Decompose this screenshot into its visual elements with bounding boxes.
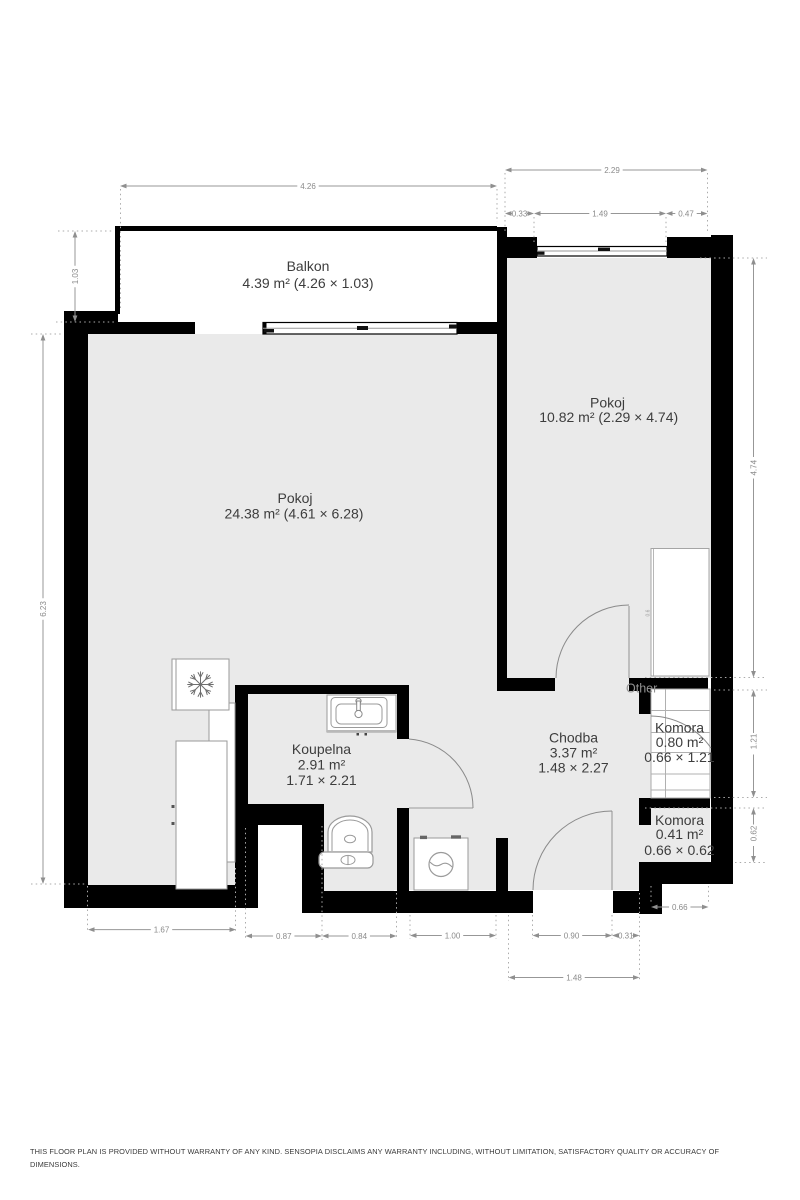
svg-text:0.41 m²: 0.41 m² — [656, 826, 704, 842]
svg-text:1.03: 1.03 — [71, 268, 80, 284]
svg-text:3.37 m²: 3.37 m² — [550, 745, 598, 761]
svg-text:0.90: 0.90 — [564, 931, 580, 940]
svg-text:0.6: 0.6 — [646, 609, 652, 616]
svg-text:0.66: 0.66 — [672, 903, 688, 912]
svg-text:0.87: 0.87 — [276, 932, 292, 941]
svg-text:0.33: 0.33 — [512, 209, 528, 218]
svg-text:0.47: 0.47 — [678, 209, 694, 218]
svg-text:Koupelna: Koupelna — [292, 741, 351, 757]
svg-text:1.48: 1.48 — [566, 973, 582, 982]
svg-text:DIMENSIONS.: DIMENSIONS. — [30, 1160, 80, 1169]
svg-text:0.84: 0.84 — [351, 932, 367, 941]
svg-text:0.80 m²: 0.80 m² — [656, 734, 704, 750]
svg-text:24.38 m² (4.61 × 6.28): 24.38 m² (4.61 × 6.28) — [225, 506, 364, 522]
svg-text:4.39 m² (4.26 × 1.03): 4.39 m² (4.26 × 1.03) — [242, 275, 373, 291]
svg-text:Chodba: Chodba — [549, 730, 598, 746]
svg-text:1.49: 1.49 — [592, 209, 608, 218]
svg-text:0.62: 0.62 — [749, 825, 758, 841]
svg-text:4.26: 4.26 — [300, 182, 316, 191]
svg-text:2.29: 2.29 — [604, 166, 620, 175]
svg-text:Pokoj: Pokoj — [277, 490, 312, 506]
svg-text:1.67: 1.67 — [154, 926, 170, 935]
svg-text:Balkon: Balkon — [287, 258, 330, 274]
svg-text:Other: Other — [626, 682, 657, 696]
svg-text:4.74: 4.74 — [749, 459, 758, 475]
svg-text:0.66 × 0.62: 0.66 × 0.62 — [644, 842, 715, 858]
svg-text:1.00: 1.00 — [445, 931, 461, 940]
svg-text:1.48 × 2.27: 1.48 × 2.27 — [538, 760, 609, 776]
svg-text:1.71 × 2.21: 1.71 × 2.21 — [286, 772, 357, 788]
svg-text:6.23: 6.23 — [39, 601, 48, 617]
svg-text:10.82 m² (2.29 × 4.74): 10.82 m² (2.29 × 4.74) — [539, 409, 678, 425]
svg-text:0.31: 0.31 — [618, 931, 634, 940]
svg-text:1.21: 1.21 — [749, 733, 758, 749]
svg-text:THIS FLOOR PLAN IS PROVIDED WI: THIS FLOOR PLAN IS PROVIDED WITHOUT WARR… — [30, 1147, 719, 1156]
svg-text:0.66 × 1.21: 0.66 × 1.21 — [644, 749, 715, 765]
svg-text:2.91 m²: 2.91 m² — [298, 757, 346, 773]
